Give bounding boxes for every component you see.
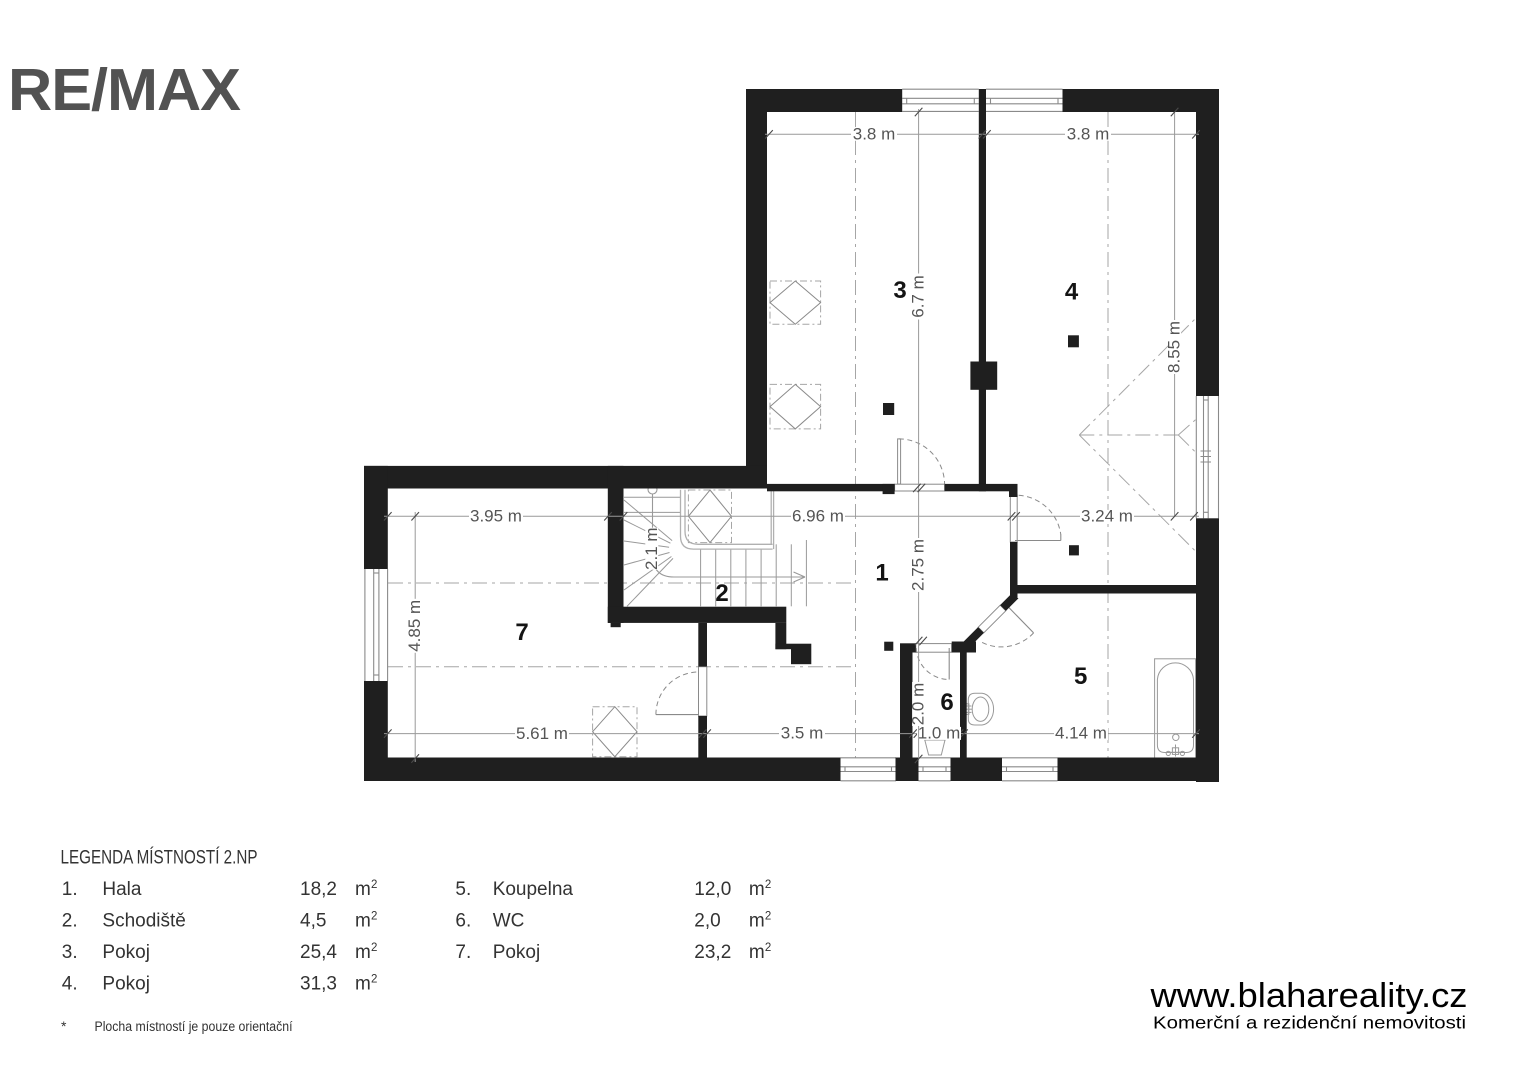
svg-text:2: 2 (765, 942, 771, 954)
svg-text:5.: 5. (455, 879, 471, 900)
svg-text:1.: 1. (62, 879, 78, 900)
svg-text:7: 7 (515, 619, 528, 646)
svg-text:23,2: 23,2 (694, 942, 731, 963)
svg-text:Pokoj: Pokoj (493, 942, 541, 963)
svg-text:3: 3 (893, 277, 906, 304)
svg-text:8.55 m: 8.55 m (1165, 321, 1184, 373)
svg-text:WC: WC (493, 911, 525, 932)
svg-text:2.0 m: 2.0 m (909, 683, 928, 726)
svg-text:RE/MAX: RE/MAX (8, 57, 241, 123)
svg-text:LEGENDA MÍSTNOSTÍ 2.NP: LEGENDA MÍSTNOSTÍ 2.NP (61, 848, 258, 869)
svg-text:m: m (749, 942, 765, 963)
svg-text:3.8 m: 3.8 m (853, 124, 896, 143)
svg-text:7.: 7. (455, 942, 471, 963)
svg-text:m: m (749, 911, 765, 932)
svg-text:25,4: 25,4 (300, 942, 337, 963)
svg-text:1: 1 (875, 559, 888, 586)
svg-text:m: m (355, 942, 371, 963)
svg-text:6.7 m: 6.7 m (909, 275, 928, 318)
svg-text:2: 2 (371, 974, 377, 986)
svg-text:6: 6 (940, 689, 953, 716)
svg-text:2.1 m: 2.1 m (642, 527, 661, 570)
svg-text:4,5: 4,5 (300, 911, 326, 932)
svg-text:5: 5 (1074, 663, 1087, 690)
svg-text:2: 2 (765, 911, 771, 923)
svg-text:6.: 6. (455, 911, 471, 932)
svg-text:m: m (749, 879, 765, 900)
svg-text:Hala: Hala (102, 879, 142, 900)
svg-text:5.61 m: 5.61 m (516, 724, 568, 743)
svg-text:2: 2 (765, 879, 771, 891)
svg-text:2.: 2. (62, 911, 78, 932)
svg-text:www.blahareality.cz: www.blahareality.cz (1149, 977, 1467, 1015)
svg-text:4.: 4. (62, 974, 78, 995)
svg-text:18,2: 18,2 (300, 879, 337, 900)
svg-text:31,3: 31,3 (300, 974, 337, 995)
svg-text:4.85 m: 4.85 m (405, 600, 424, 652)
svg-text:2: 2 (371, 879, 377, 891)
svg-text:2: 2 (371, 942, 377, 954)
svg-text:3.8 m: 3.8 m (1067, 124, 1110, 143)
svg-text:12,0: 12,0 (694, 879, 731, 900)
svg-text:Pokoj: Pokoj (102, 974, 150, 995)
svg-text:Schodiště: Schodiště (102, 911, 185, 932)
svg-text:2.75 m: 2.75 m (909, 539, 928, 591)
svg-text:Pokoj: Pokoj (102, 942, 150, 963)
svg-text:4.14 m: 4.14 m (1055, 724, 1107, 743)
svg-text:3.95 m: 3.95 m (470, 506, 522, 525)
svg-text:m: m (355, 879, 371, 900)
svg-text:3.24 m: 3.24 m (1081, 506, 1133, 525)
svg-text:4: 4 (1065, 278, 1079, 305)
svg-text:Plocha místností je pouze orie: Plocha místností je pouze orientační (95, 1019, 293, 1034)
svg-text:m: m (355, 911, 371, 932)
svg-text:m: m (355, 974, 371, 995)
svg-text:*: * (61, 1018, 67, 1034)
svg-text:3.5 m: 3.5 m (781, 723, 824, 742)
svg-text:6.96 m: 6.96 m (792, 506, 844, 525)
svg-text:Komerční a rezidenční nemovito: Komerční a rezidenční nemovitosti (1153, 1013, 1466, 1033)
svg-text:Koupelna: Koupelna (493, 879, 574, 900)
svg-text:3.: 3. (62, 942, 78, 963)
svg-text:2: 2 (371, 911, 377, 923)
svg-text:2,0: 2,0 (694, 911, 720, 932)
svg-text:2: 2 (715, 580, 728, 607)
